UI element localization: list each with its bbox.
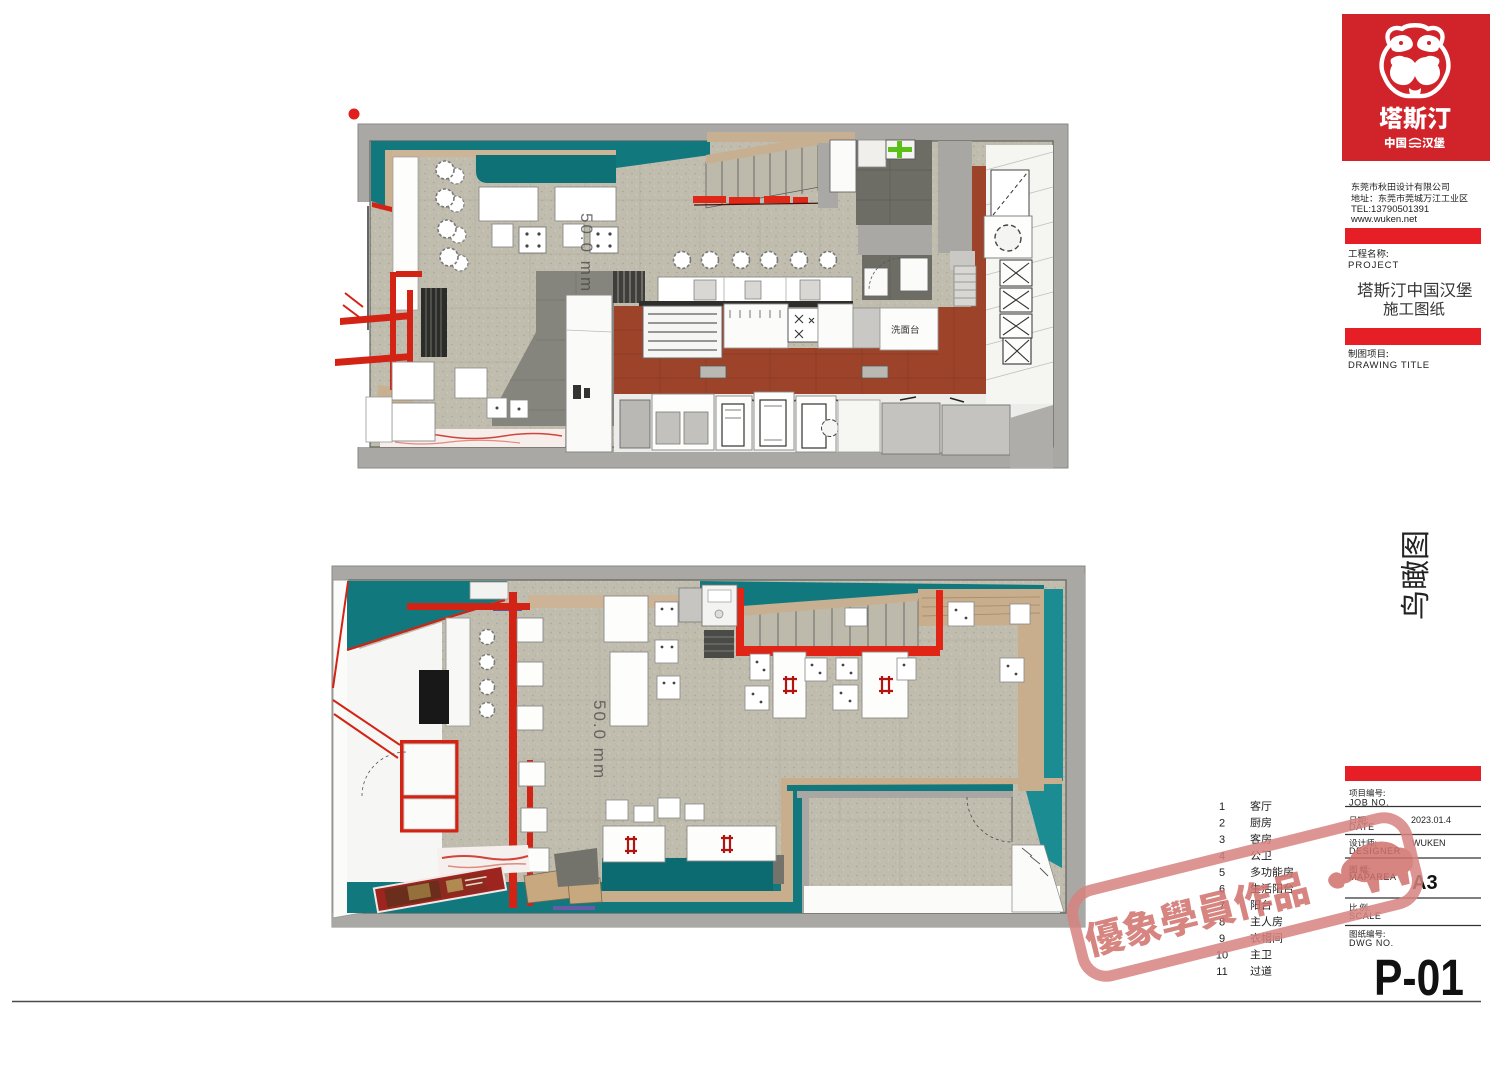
svg-text:P-01: P-01 [1374,949,1464,1006]
svg-text:3: 3 [1219,834,1225,846]
svg-text:DRAWING TITLE: DRAWING TITLE [1348,360,1430,371]
svg-text:2: 2 [1219,818,1225,830]
svg-text:www.wuken.net: www.wuken.net [1350,214,1417,225]
svg-text:PROJECT: PROJECT [1348,260,1399,271]
svg-text:WUKEN: WUKEN [1412,838,1446,848]
svg-text:5: 5 [1219,867,1225,879]
svg-text:11: 11 [1216,966,1227,978]
svg-text:50.0 mm: 50.0 mm [577,213,596,293]
svg-text:DWG NO.: DWG NO. [1349,938,1394,948]
svg-text:1: 1 [1219,801,1225,813]
svg-text:50.0 mm: 50.0 mm [590,700,609,780]
svg-text:2023.01.4: 2023.01.4 [1411,815,1451,825]
